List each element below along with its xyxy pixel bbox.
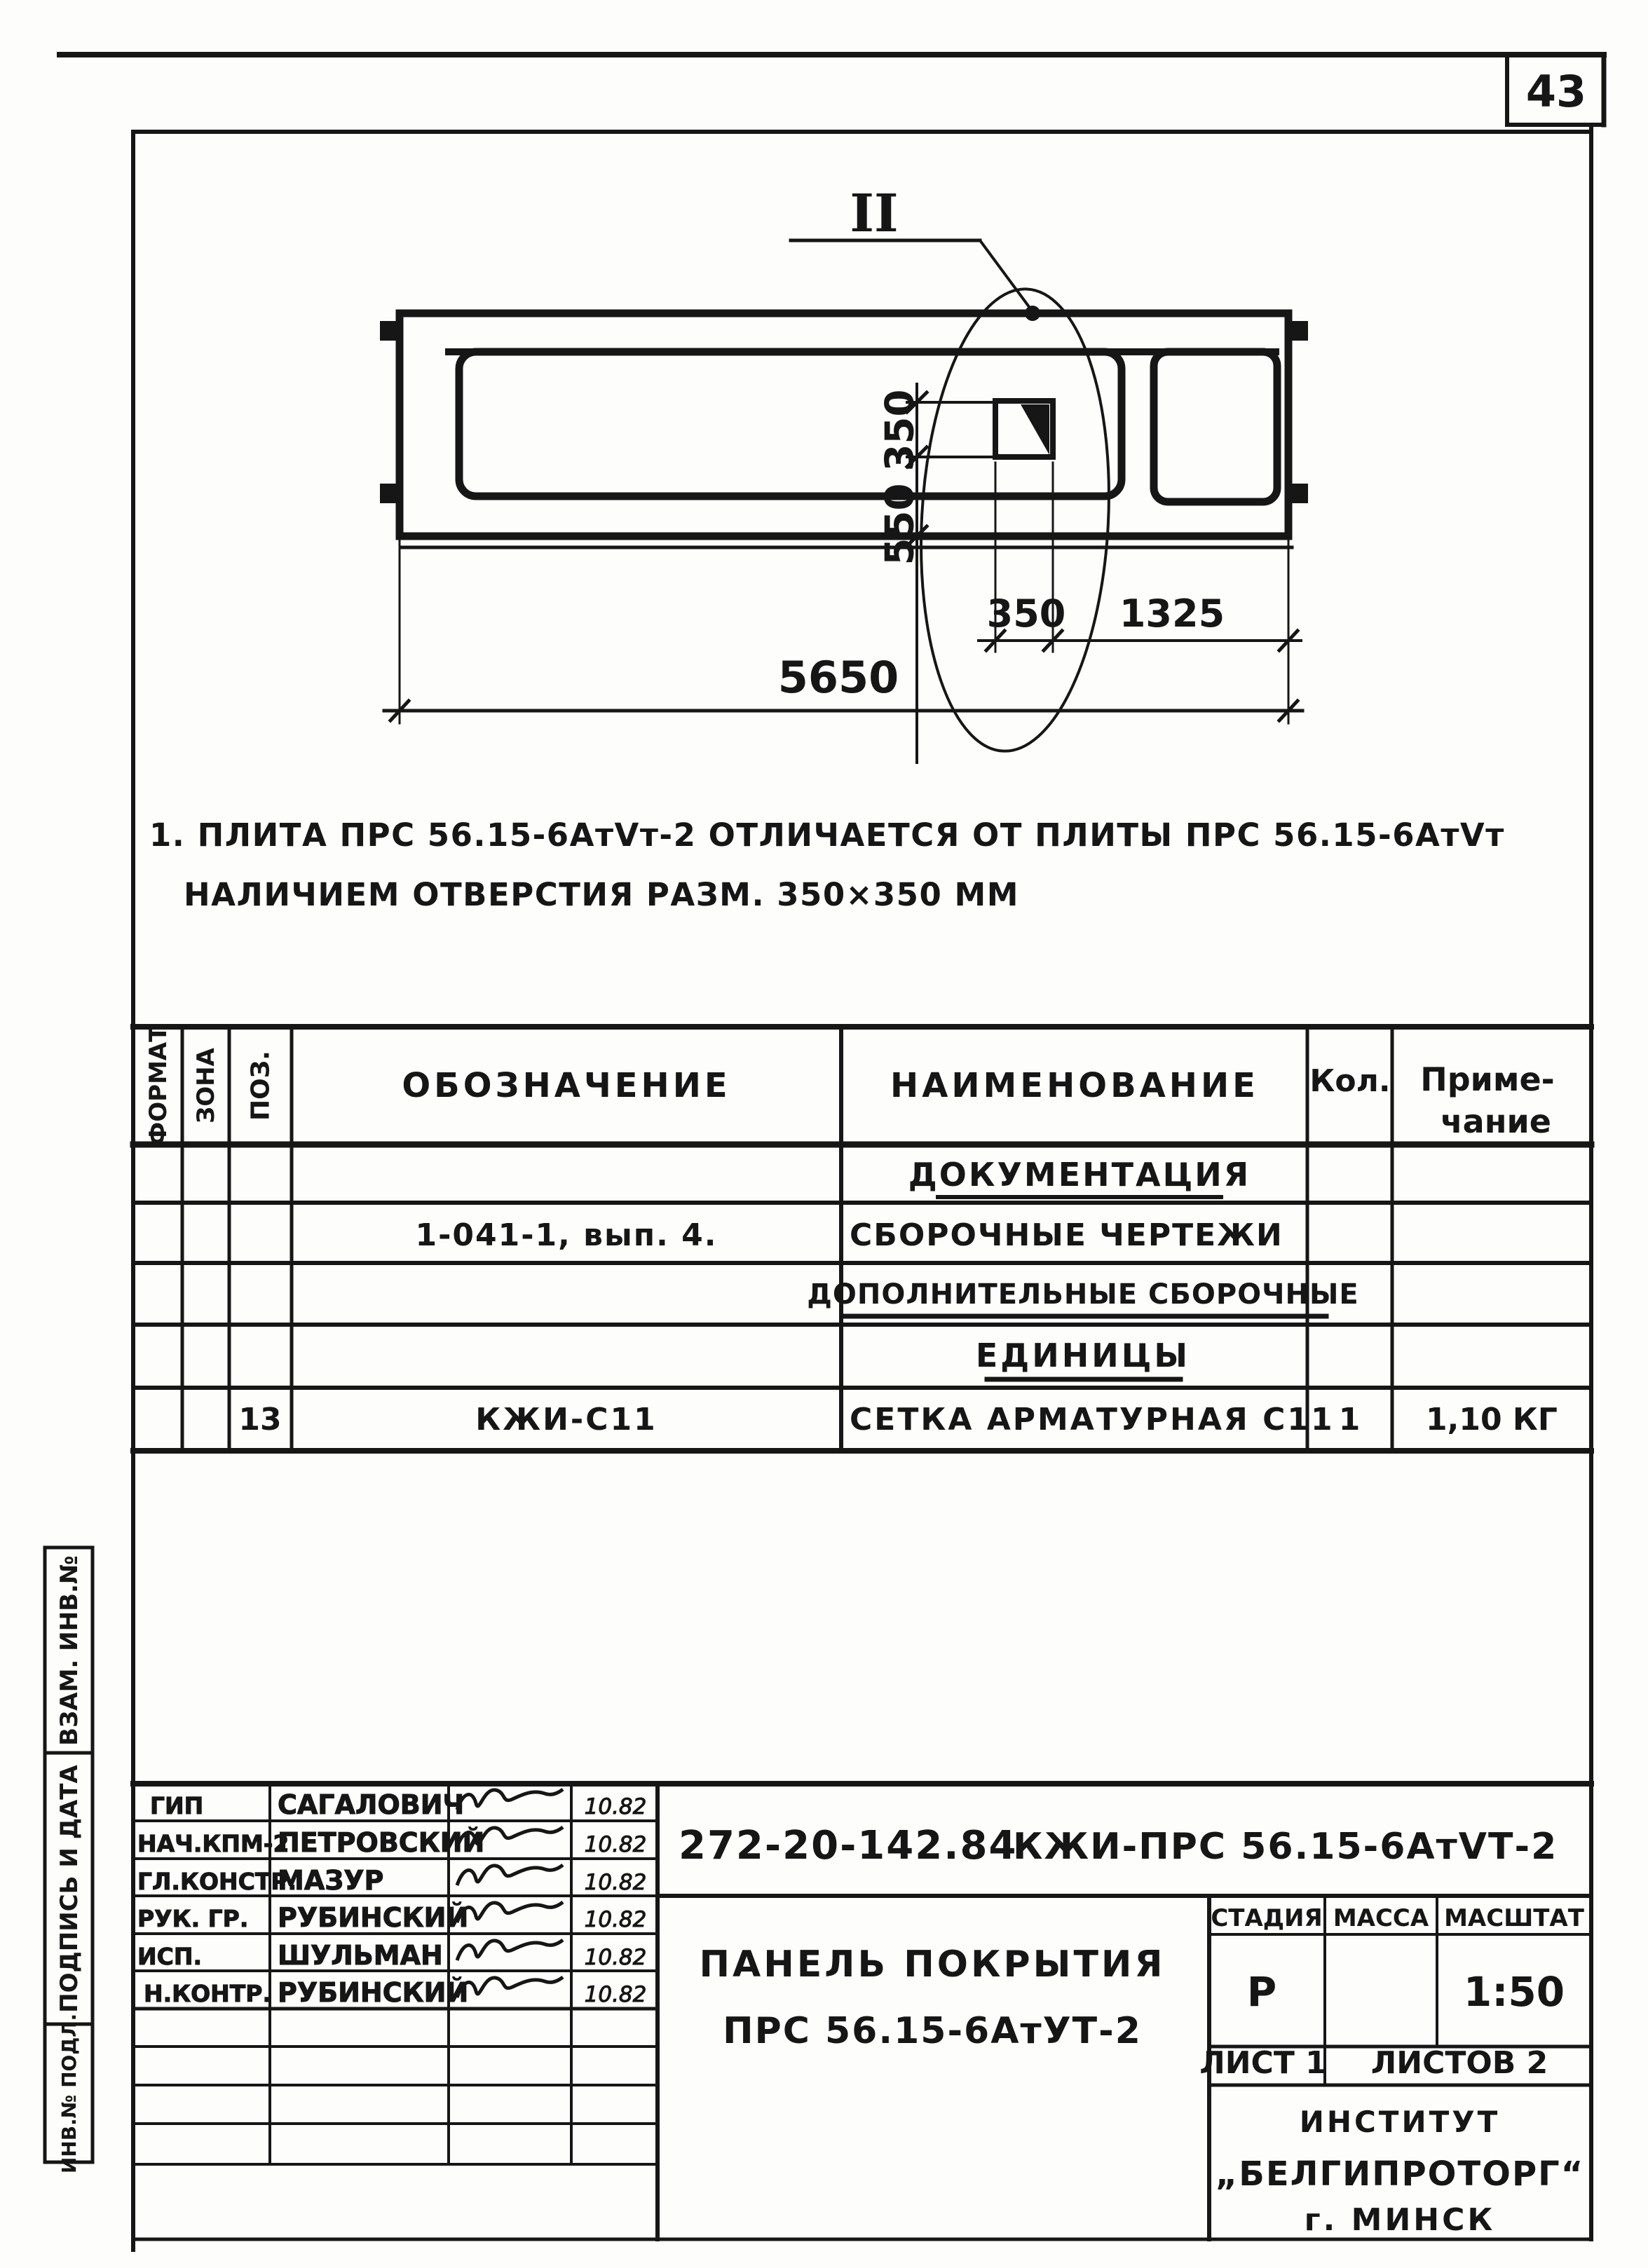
signature-scribble [457,1789,563,1810]
signature-scribble [457,1865,563,1885]
sheet-title-line-2: ПРС 56.15-6АтУТ-2 [723,2010,1142,2052]
mass-header: МАССА [1333,1904,1429,1932]
spec-table-rows: ДОКУМЕНТАЦИЯ 1-041-1, вып. 4. СБОРОЧНЫЕ … [238,1156,1558,1437]
corner-tab-top-right [1287,321,1308,341]
dimension-line-hole: 350 1325 [979,592,1301,650]
stage-header: СТАДИЯ [1211,1904,1322,1932]
side-strip: ВЗАМ. ИНВ.№ ПОДПИСЬ И ДАТА ИНВ.№ ПОДЛ. [45,1548,93,2173]
page-number: 43 [1526,66,1586,117]
spec-row-mesh-designation: КЖИ-С11 [475,1402,657,1437]
dim-5650: 5650 [778,652,899,703]
spec-row-additional-units-2: ЕДИНИЦЫ [976,1337,1190,1374]
spec-row-assembly-drawings: СБОРОЧНЫЕ ЧЕРТЕЖИ [850,1217,1283,1253]
sig-name: ШУЛЬМАН [278,1940,443,1971]
panel-left-cell [459,352,1122,496]
spec-row-series-designation: 1-041-1, вып. 4. [415,1217,717,1253]
dim-550-vertical: 550 [878,484,923,566]
spec-row-mesh-qty: 1 [1339,1402,1361,1437]
spec-row-additional-units-1: ДОПОЛНИТЕЛЬНЫЕ СБОРОЧНЫЕ [807,1278,1359,1311]
sig-name: РУБИНСКИЙ [278,1902,468,1933]
sig-role: ГИП [150,1792,203,1819]
spec-header-note-1: Приме- [1420,1060,1555,1098]
note-line-2: НАЛИЧИЕМ ОТВЕРСТИЯ РАЗМ. 350×350 ММ [184,876,1019,913]
corner-tab-top-left [380,321,401,341]
doc-number: 272-20-142.84 [679,1823,1017,1869]
scale-value: 1:50 [1464,1968,1565,2016]
institute-line-2: „БЕЛГИПРОТОРГ“ [1215,2154,1585,2194]
sig-name: ПЕТРОВСКИЙ [278,1827,484,1858]
spec-row-documentation: ДОКУМЕНТАЦИЯ [908,1156,1251,1194]
detail-label: II [850,184,898,244]
spec-header-zone: ЗОНА [192,1047,220,1123]
sig-role: НАЧ.КПМ-2 [137,1830,289,1857]
sheets-total: ЛИСТОВ 2 [1371,2045,1548,2081]
signature-scribble [457,1940,563,1960]
corner-tab-bottom-right [1287,484,1308,503]
sig-date: 10.82 [585,1945,647,1970]
vertical-dimension-chain: 350 550 [878,384,998,763]
sig-role: Н.КОНТР. [144,1980,271,2007]
sheet-title-line-1: ПАНЕЛЬ ПОКРЫТИЯ [700,1943,1166,1986]
dimension-line-overall: 5650 [384,652,1302,720]
spec-header-pos: ПОЗ. [247,1051,275,1121]
corner-tab-bottom-left [380,484,401,503]
spec-row-mesh-note: 1,10 КГ [1426,1402,1558,1437]
stage-mass-scale: СТАДИЯ МАССА МАСШТАТ Р 1:50 ЛИСТ 1 ЛИСТО… [1199,1904,1585,2081]
signature-scribble [457,1977,563,1997]
sig-date: 10.82 [585,1870,647,1895]
dim-350-horizontal: 350 [987,592,1066,636]
doc-code: КЖИ-ПРС 56.15-6АтVТ-2 [1013,1826,1558,1868]
sig-date: 10.82 [585,1907,647,1932]
strip-vzam-inv: ВЗАМ. ИНВ.№ [55,1555,83,1746]
note-line-1: 1. ПЛИТА ПРС 56.15-6АтVт-2 ОТЛИЧАЕТСЯ ОТ… [149,817,1505,854]
sig-role: ИСП. [137,1943,202,1970]
spec-table-header: ФОРМАТ ЗОНА ПОЗ. ОБОЗНАЧЕНИЕ НАИМЕНОВАНИ… [144,1025,1555,1146]
institute-line-1: ИНСТИТУТ [1300,2105,1501,2139]
leader-line [980,240,1035,315]
signature-scribble [457,1902,563,1922]
strip-inv-podl: ИНВ.№ ПОДЛ. [57,2014,81,2173]
institute-line-3: г. МИНСК [1305,2202,1496,2238]
sig-role: ГЛ.КОНСТР. [137,1868,297,1895]
institute-box: ИНСТИТУТ „БЕЛГИПРОТОРГ“ г. МИНСК [1215,2105,1585,2238]
sig-date: 10.82 [585,1794,647,1819]
dim-1325: 1325 [1119,592,1225,636]
drawing-sheet-page: 43 II 350 550 [0,0,1648,2268]
spec-header-qty: Кол. [1309,1063,1390,1099]
spec-row-mesh-name: СЕТКА АРМАТУРНАЯ С11 [850,1402,1335,1437]
spec-header-designation: ОБОЗНАЧЕНИЕ [402,1066,730,1105]
panel-right-cell [1154,352,1277,502]
spec-row-mesh-pos: 13 [238,1402,281,1437]
stage-value: Р [1247,1968,1277,2016]
dim-350-vertical: 350 [878,390,923,472]
sig-name: МАЗУР [278,1865,383,1896]
spec-header-format: ФОРМАТ [144,1025,172,1146]
strip-podpis-data: ПОДПИСЬ И ДАТА [55,1764,83,2012]
notes: 1. ПЛИТА ПРС 56.15-6АтVт-2 ОТЛИЧАЕТСЯ ОТ… [149,817,1505,913]
spec-header-note-2: чание [1441,1102,1551,1140]
sig-date: 10.82 [585,1832,647,1857]
sig-date: 10.82 [585,1982,647,2007]
sheet-number: ЛИСТ 1 [1199,2045,1327,2081]
panel-plan-drawing: II 350 550 350 1325 [380,184,1308,763]
sig-name: САГАЛОВИЧ [278,1789,464,1820]
hole-corner-mark [1021,404,1049,455]
scale-header: МАСШТАТ [1444,1904,1585,1932]
sig-role: РУК. ГР. [137,1905,248,1932]
spec-header-name: НАИМЕНОВАНИЕ [890,1066,1259,1105]
sig-name: РУБИНСКИЙ [278,1977,468,2008]
